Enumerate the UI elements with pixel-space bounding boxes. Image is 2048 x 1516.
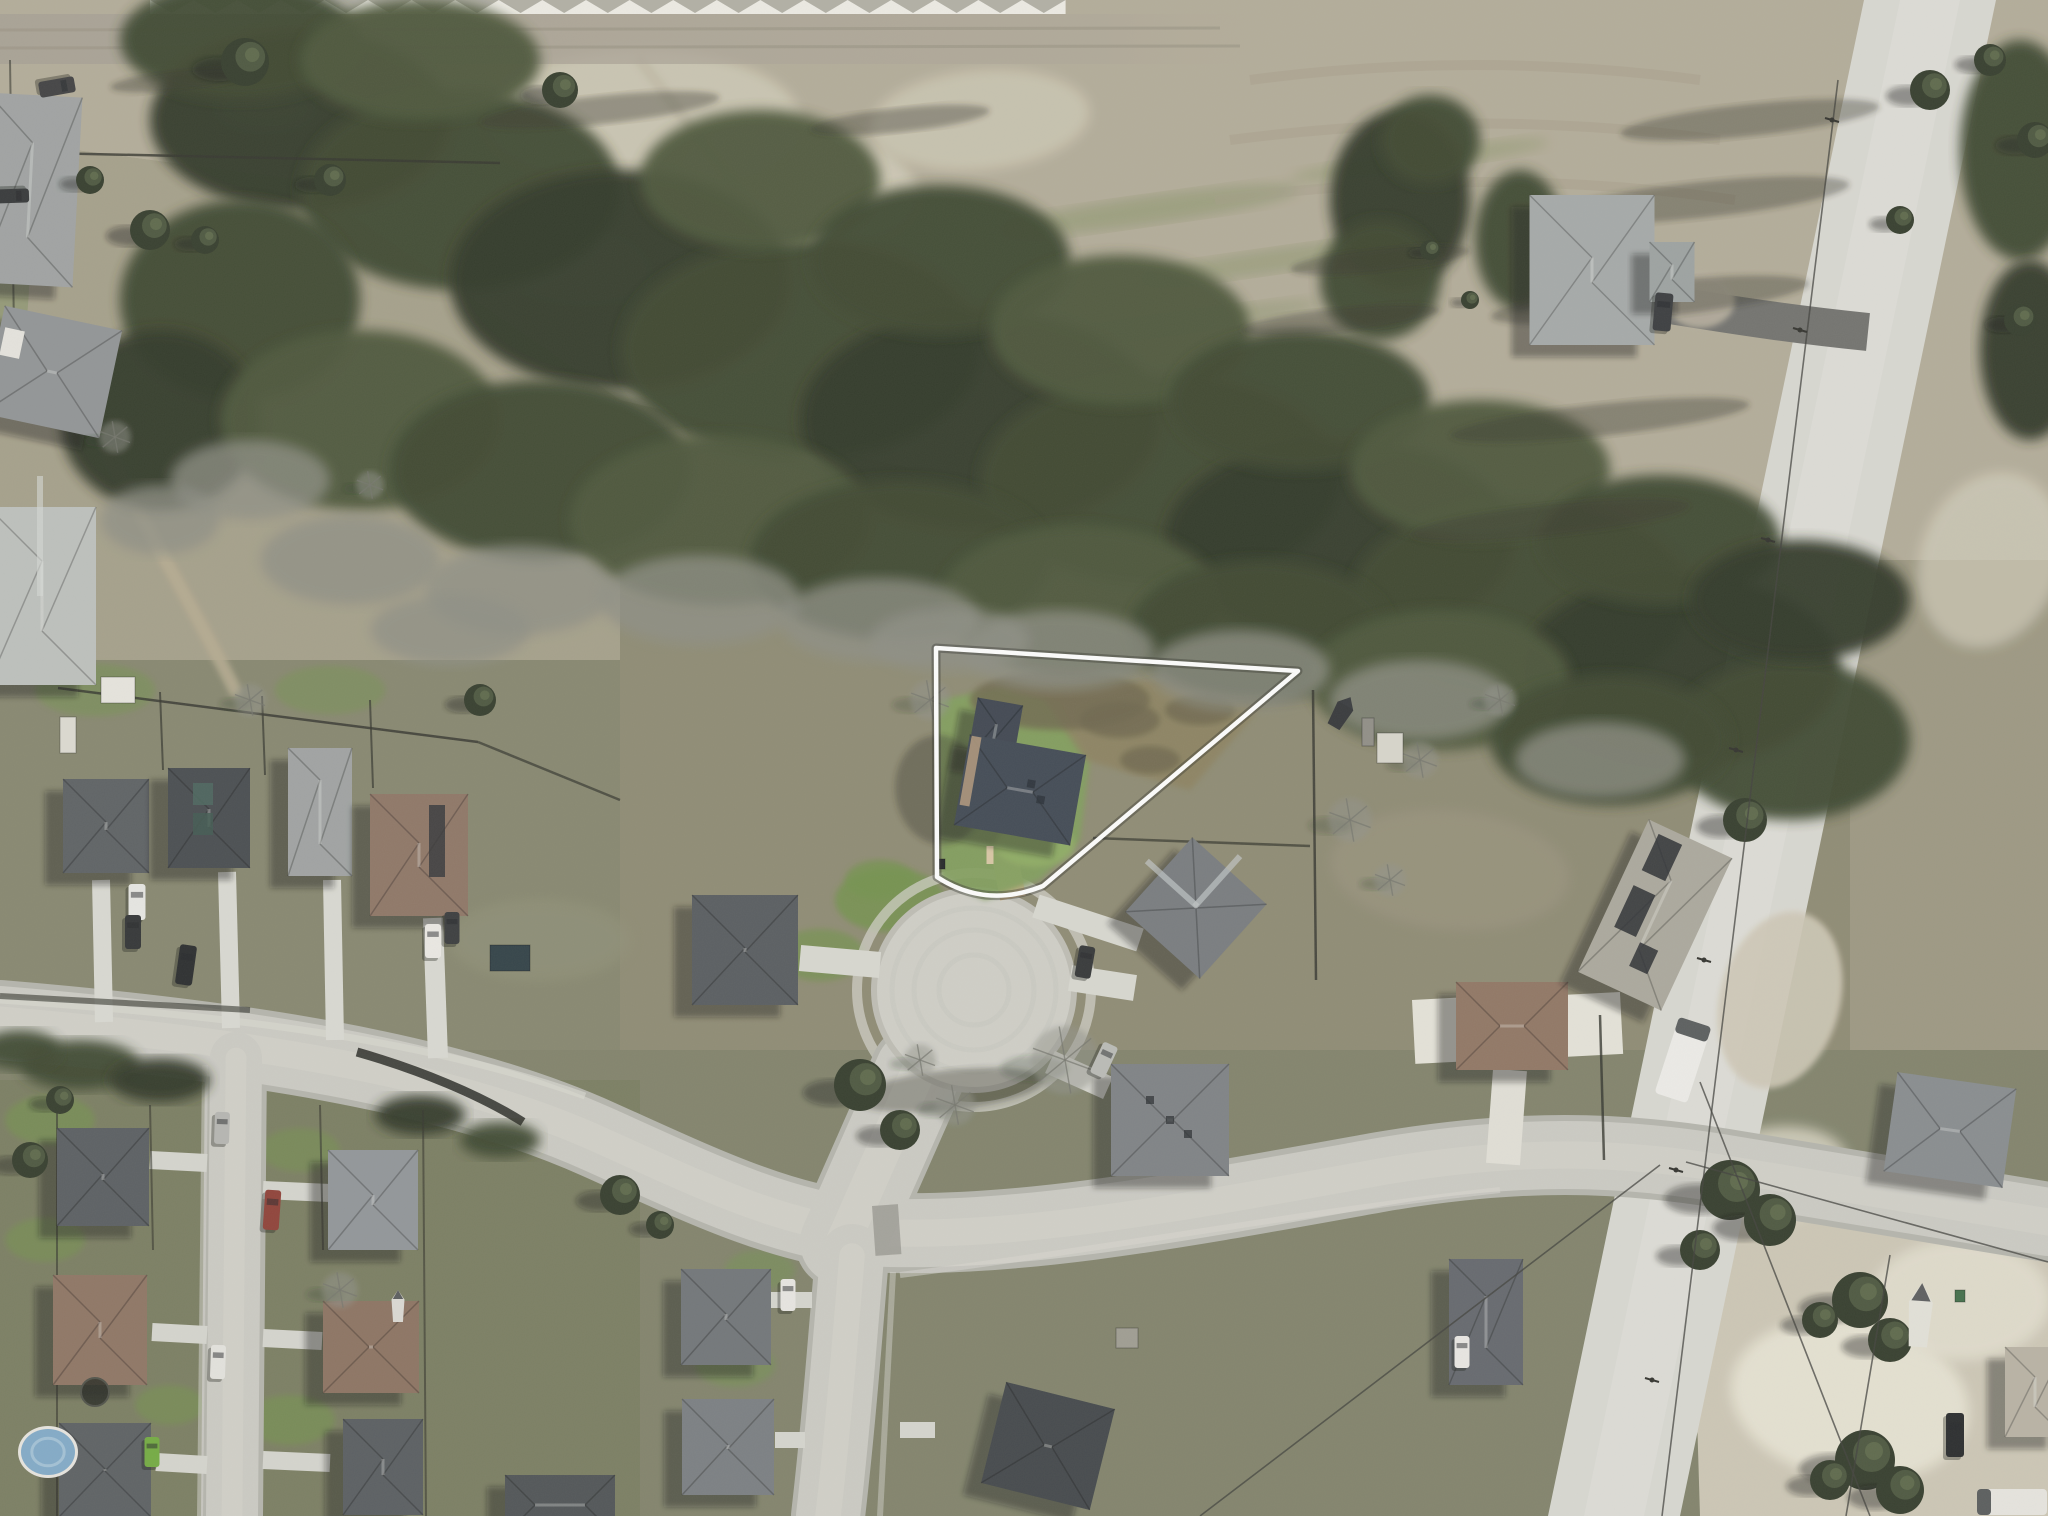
photo-tone-overlay (0, 0, 2048, 1516)
film-grain (0, 0, 2048, 1516)
aerial-photo-canvas (0, 0, 2048, 1516)
aerial-photo (0, 0, 2048, 1516)
